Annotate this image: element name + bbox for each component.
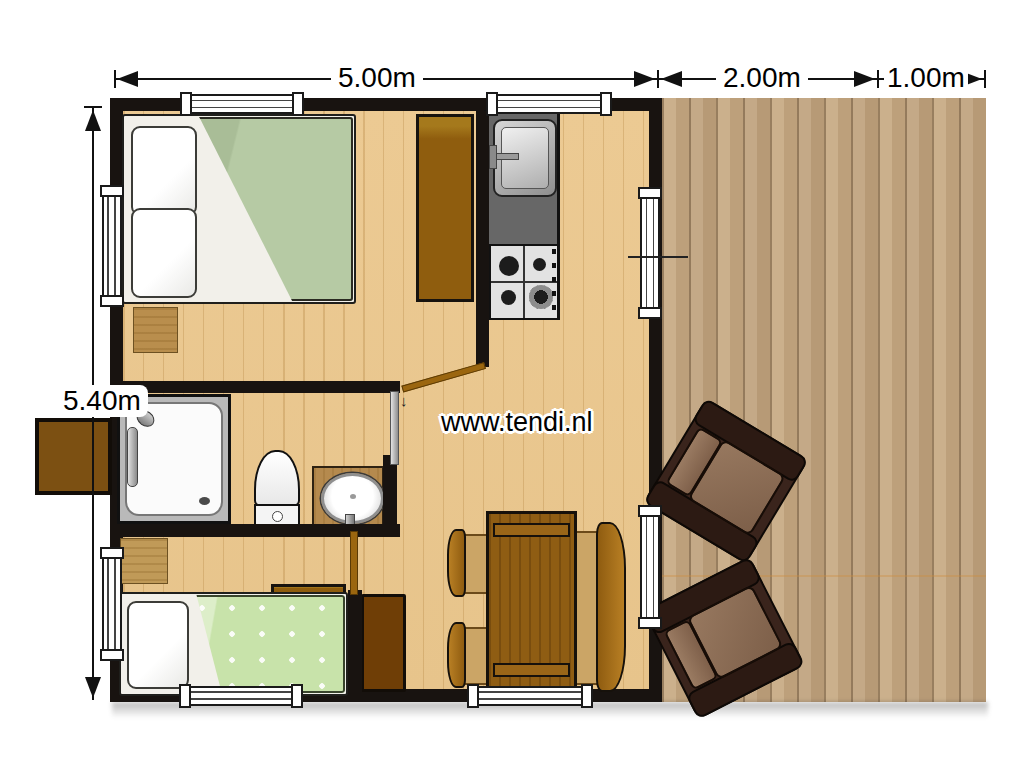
burner [499, 256, 519, 276]
toilet-flush-button [272, 511, 283, 522]
door-swing-arrow-icon: ↓ [400, 392, 408, 409]
dim-tick [114, 70, 116, 88]
window-bottom-living [468, 686, 592, 706]
window-right-kitchen [640, 188, 660, 318]
dim-arrow [85, 110, 101, 131]
dim-arrow [117, 71, 138, 87]
wardrobe [416, 114, 474, 302]
window-opening-marker [628, 256, 688, 258]
dining-chair-back [447, 529, 466, 597]
toilet [254, 450, 300, 528]
dim-arrow [85, 677, 101, 698]
toilet-bowl [254, 450, 300, 506]
dining-table [486, 511, 577, 689]
kitchen-counter [484, 110, 560, 320]
table-end-rail [493, 663, 570, 677]
window-right-living [640, 506, 660, 628]
stove-knobs [552, 249, 556, 311]
dim-label-5-4m: 5.40m [56, 385, 148, 417]
burner [501, 290, 516, 305]
dim-tick [657, 70, 659, 88]
wall-bedroom2-right [348, 590, 362, 702]
floorplan-canvas: ↓ 5.00m 2.00m 1.00m 5.40m www.tendi.nl [0, 0, 1024, 768]
shower-rail [127, 427, 138, 487]
duvet [184, 117, 353, 301]
wall-bathroom-right [383, 455, 397, 537]
bench-back [596, 522, 626, 692]
entry-step [35, 418, 112, 495]
wall-bedroom-kitchen [476, 111, 489, 367]
bathroom-door [390, 391, 399, 465]
burner [529, 285, 553, 309]
window-top-kitchen [487, 94, 611, 114]
bedside-mat [133, 307, 178, 353]
dim-arrow [634, 71, 655, 87]
double-bed [122, 114, 356, 304]
kitchen-sink [493, 119, 557, 197]
faucet-base [489, 145, 497, 169]
window-left-bedroom2 [102, 548, 122, 660]
window-left-bedroom [102, 186, 122, 306]
pillow [131, 126, 197, 216]
watermark-url: www.tendi.nl [441, 407, 593, 438]
dim-tick [84, 106, 102, 108]
bedroom2-door [350, 531, 358, 595]
dim-label-1m: 1.00m [884, 62, 968, 94]
shower-drain [199, 497, 210, 505]
side-cabinet [361, 594, 406, 692]
burner [533, 258, 546, 271]
pillow [131, 208, 197, 298]
dim-arrow [661, 71, 682, 87]
gas-stove [489, 244, 559, 320]
dim-arrow [854, 71, 875, 87]
single-bed [119, 592, 348, 696]
dim-label-5m: 5.00m [331, 62, 423, 94]
dim-tick [984, 70, 986, 88]
window-top-bedroom [181, 94, 303, 114]
dining-chair-back [447, 622, 466, 688]
bedside-mat [120, 538, 168, 584]
wall-bedroom-bathroom [110, 381, 400, 393]
basin-drain [350, 494, 356, 499]
dim-tick [877, 70, 879, 88]
dim-label-2m: 2.00m [716, 62, 808, 94]
washbasin-counter [312, 466, 384, 526]
blanket [187, 595, 345, 693]
table-end-rail [493, 523, 570, 537]
pillow [127, 601, 189, 689]
window-bottom-bedroom2 [180, 686, 302, 706]
